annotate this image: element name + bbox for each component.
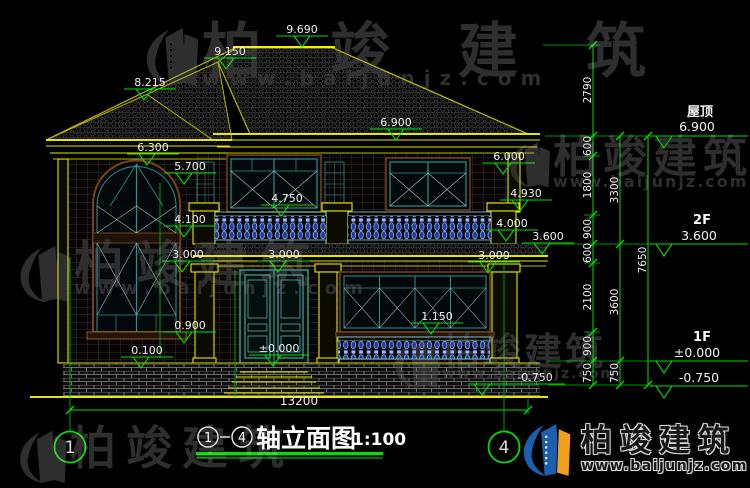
cad-canvas: { "drawing": { "title_axis_start": "1", … bbox=[0, 0, 750, 488]
marker-value: 4.750 bbox=[271, 192, 303, 205]
drawing-scale: 1:100 bbox=[352, 430, 406, 450]
site-logo-brand: 柏竣建筑 bbox=[581, 424, 748, 458]
first-floor bbox=[191, 264, 520, 363]
marker-value: 8.215 bbox=[134, 76, 166, 89]
marker-value: 4.930 bbox=[510, 187, 542, 200]
marker-value: 3.000 bbox=[478, 249, 510, 262]
dim-value: 750 bbox=[609, 363, 621, 383]
marker-value: 3.000 bbox=[268, 248, 300, 261]
level-name: 2F bbox=[693, 213, 711, 228]
level-name: 1F bbox=[693, 330, 711, 345]
marker-value: 4.000 bbox=[496, 217, 528, 230]
level-value: 3.600 bbox=[681, 228, 717, 243]
level-value: ±0.000 bbox=[674, 345, 720, 360]
marker-value: -0.750 bbox=[517, 371, 552, 384]
marker-value: 3.000 bbox=[172, 248, 204, 261]
marker-value: 6.000 bbox=[493, 150, 525, 163]
site-logo-icon bbox=[517, 418, 575, 480]
marker-value: ±0.000 bbox=[259, 342, 300, 355]
site-logo-url: www.baijunjz.com bbox=[581, 458, 748, 475]
dim-value: 750 bbox=[582, 363, 594, 383]
dim-value: 2790 bbox=[582, 77, 594, 104]
dim-value: 3300 bbox=[609, 177, 621, 204]
level-symbols-right: 屋顶 6.900 2F 3.600 1F ±0.000 -0.750 bbox=[650, 105, 748, 398]
balcony-balustrade-right bbox=[348, 216, 491, 240]
dim-value: 900 bbox=[582, 219, 594, 239]
level-name: 屋顶 bbox=[687, 105, 713, 120]
balcony-balustrade-left bbox=[215, 216, 326, 240]
axis-number: 4 bbox=[499, 438, 510, 458]
arched-window-sill bbox=[87, 332, 186, 339]
roof-group bbox=[46, 47, 540, 159]
plinth bbox=[63, 363, 540, 397]
marker-value: 9.690 bbox=[286, 23, 318, 36]
title-axis-end: 4 bbox=[238, 431, 246, 446]
title-underline-thick bbox=[196, 452, 383, 455]
left-wing-roof bbox=[46, 62, 232, 140]
corner-pilaster-left bbox=[58, 159, 68, 363]
marker-value: 1.150 bbox=[421, 310, 453, 323]
pilaster-door-left bbox=[191, 264, 218, 363]
overall-dim: 13200 bbox=[280, 394, 318, 408]
dim-value: 2100 bbox=[582, 284, 594, 311]
title-axis-start: 1 bbox=[204, 431, 212, 446]
marker-value: 4.100 bbox=[174, 213, 206, 226]
marker-value: 6.300 bbox=[137, 141, 169, 154]
dim-value: 3600 bbox=[609, 289, 621, 316]
marker-value: 6.900 bbox=[380, 116, 412, 129]
dim-value: 600 bbox=[582, 243, 594, 263]
window-2f-right bbox=[386, 158, 470, 210]
dim-value: 1800 bbox=[582, 172, 594, 199]
marker-value: 0.100 bbox=[131, 344, 163, 357]
dim-value: 7650 bbox=[637, 247, 649, 274]
arched-window bbox=[87, 161, 186, 339]
porch-balustrade bbox=[338, 337, 490, 363]
dimension-chains-right: 2790 600 1800 900 600 2100 900 750 3300 … bbox=[543, 41, 652, 389]
level-value: 6.900 bbox=[679, 119, 715, 134]
window-1f-right bbox=[336, 272, 494, 337]
pilaster-door-right bbox=[315, 264, 341, 363]
level-value: -0.750 bbox=[679, 370, 719, 385]
site-logo: 柏竣建筑 www.baijunjz.com bbox=[517, 418, 748, 480]
marker-value: 9.150 bbox=[214, 45, 246, 58]
marker-value: 5.700 bbox=[174, 160, 206, 173]
elevation-drawing: 2790 600 1800 900 600 2100 900 750 3300 … bbox=[0, 0, 750, 488]
plinth-ground bbox=[30, 363, 548, 397]
dim-value: 900 bbox=[582, 336, 594, 356]
marker-value: 0.900 bbox=[174, 319, 206, 332]
main-roof bbox=[218, 48, 528, 134]
dim-value: 600 bbox=[582, 136, 594, 156]
axis-number: 1 bbox=[65, 438, 76, 458]
drawing-title: 轴立面图 bbox=[256, 424, 356, 453]
marker-value: 3.600 bbox=[532, 230, 564, 243]
title-block: 1 4 轴立面图 1:100 bbox=[196, 424, 406, 458]
main-cornice bbox=[213, 134, 540, 153]
